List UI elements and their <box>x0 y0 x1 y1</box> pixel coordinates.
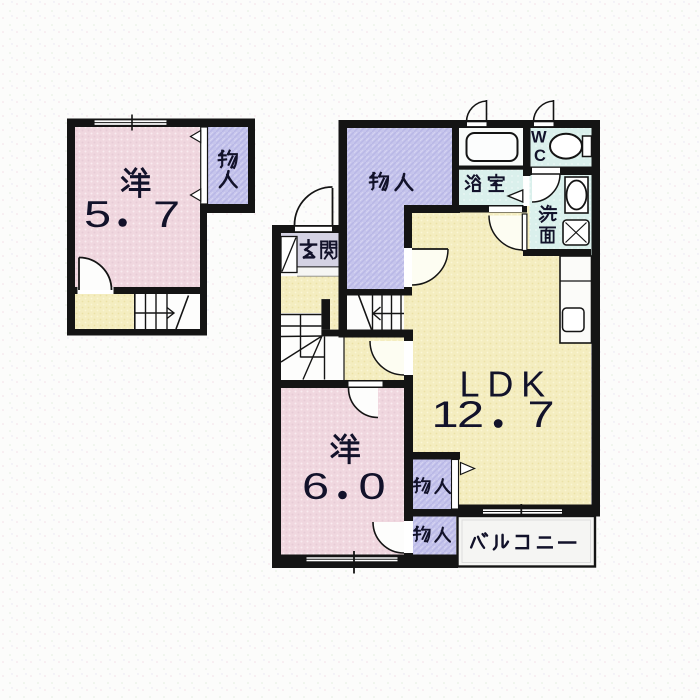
svg-text:6: 6 <box>302 466 329 507</box>
svg-text:0: 0 <box>359 466 386 507</box>
svg-text:W: W <box>531 129 547 147</box>
svg-text:1: 1 <box>432 394 459 435</box>
svg-text:7: 7 <box>528 394 555 435</box>
svg-text:5: 5 <box>84 194 111 235</box>
svg-text:2: 2 <box>457 394 484 435</box>
svg-text:C: C <box>534 147 546 165</box>
svg-text:7: 7 <box>153 194 180 235</box>
